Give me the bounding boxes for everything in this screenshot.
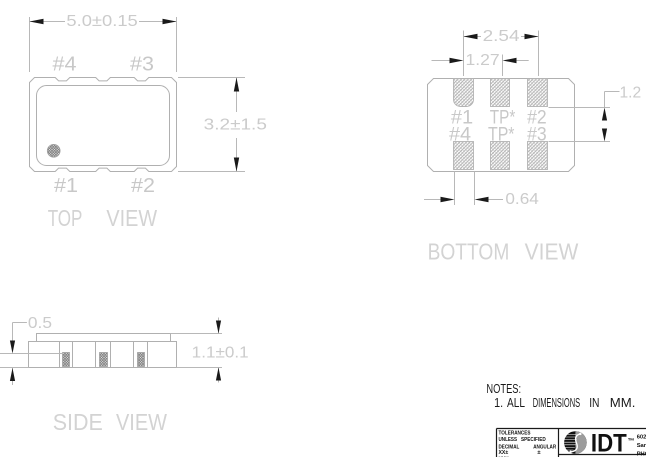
svg-text:PHO: PHO	[637, 452, 646, 457]
svg-text:ALL: ALL	[507, 396, 525, 410]
svg-text:IDT: IDT	[591, 430, 627, 457]
svg-text:#1: #1	[54, 175, 78, 197]
svg-text:2.54: 2.54	[483, 28, 520, 45]
svg-text:#3: #3	[527, 125, 547, 146]
svg-text:VIEW: VIEW	[116, 409, 167, 435]
svg-text:TOP: TOP	[48, 205, 83, 231]
svg-text:1.1±0.1: 1.1±0.1	[192, 344, 249, 361]
svg-text:TP*: TP*	[488, 125, 515, 146]
svg-text:1.: 1.	[494, 396, 503, 410]
svg-text:0.64: 0.64	[505, 191, 539, 208]
svg-text:VIEW: VIEW	[525, 238, 579, 264]
svg-text:San: San	[637, 443, 646, 449]
svg-text:0.5: 0.5	[28, 315, 52, 332]
svg-text:XX±: XX±	[499, 450, 509, 456]
svg-text:#4: #4	[53, 54, 77, 76]
svg-text:™: ™	[628, 438, 635, 445]
svg-text:1.27: 1.27	[466, 52, 500, 69]
svg-text:#4: #4	[449, 125, 472, 146]
svg-text:1.2: 1.2	[620, 85, 642, 102]
svg-text:3.2±1.5: 3.2±1.5	[204, 117, 267, 134]
svg-text:5.0±0.15: 5.0±0.15	[66, 13, 137, 30]
svg-text:#3: #3	[130, 54, 154, 76]
svg-text:TOLERANCES: TOLERANCES	[499, 431, 531, 437]
svg-text:IN: IN	[589, 396, 599, 410]
svg-text:DIMENSIONS: DIMENSIONS	[533, 396, 581, 410]
svg-text:SPECIFIED: SPECIFIED	[521, 437, 546, 443]
svg-text:VIEW: VIEW	[106, 205, 157, 231]
svg-text:SIDE: SIDE	[53, 409, 103, 435]
svg-text:#2: #2	[131, 175, 155, 197]
svg-text:NOTES:: NOTES:	[486, 382, 521, 396]
svg-text:UNLESS: UNLESS	[499, 437, 518, 443]
svg-text:6024: 6024	[637, 435, 646, 441]
svg-text:MM.: MM.	[610, 396, 636, 410]
svg-text:BOTTOM: BOTTOM	[428, 238, 510, 264]
